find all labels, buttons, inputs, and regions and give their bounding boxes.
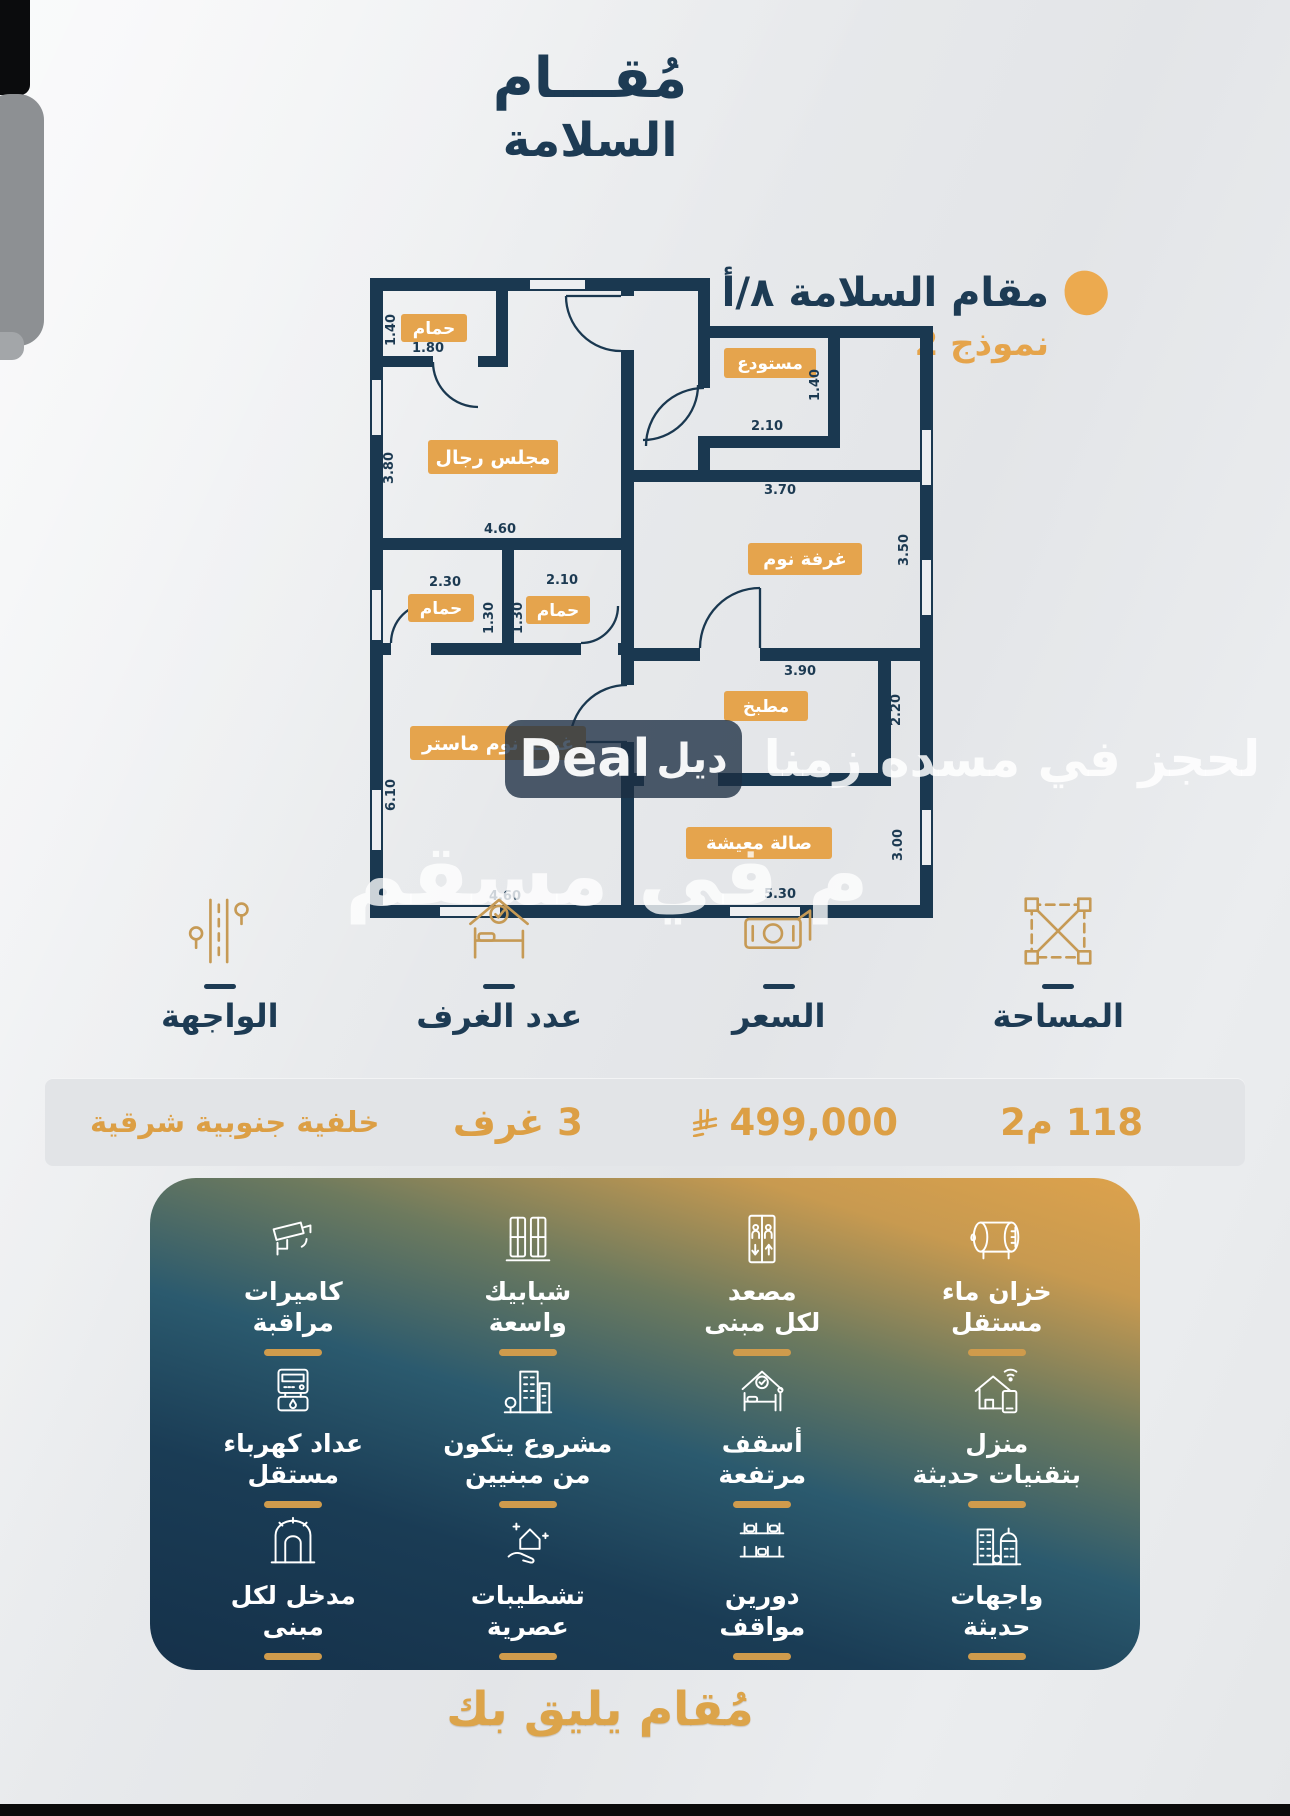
dim-master-h: 6.10 [384,779,399,811]
feature-underline [264,1349,322,1356]
features-grid: ٥ خزان ماءمستقل مصعدلكل مبنى [150,1178,1140,1670]
spec-facade-value: خلفية جنوبية شرقية [90,1105,379,1139]
feature-modern-facades: واجهاتحديثة [880,1508,1115,1660]
room-label-storage: مستودع [737,354,803,374]
feature-elevator: مصعدلكل مبنى [645,1204,880,1356]
feature-label: دورينمواقف [719,1580,805,1642]
divider-dash [763,984,795,989]
entrance-icon [262,1512,324,1574]
svg-text:٥: ٥ [969,1230,976,1244]
feature-entrance: مدخل لكلمبنى [176,1508,411,1660]
smart-home-icon [966,1360,1028,1422]
brand-logo-line1: مُقـــام [0,46,1180,111]
specs-values-band: 118 م2 499,000 3 غرف خلفية جنوبية شرقية [45,1078,1245,1166]
feature-label: كاميراتمراقبة [244,1276,343,1338]
dim-bedroom-h: 3.50 [897,534,912,566]
brand-logo-line2: السلامة [0,113,1180,168]
blob-icon [1059,266,1112,319]
feature-label: شبابيكواسعة [484,1276,571,1338]
feature-underline [733,1501,791,1508]
feature-label: مصعدلكل مبنى [704,1276,820,1338]
elevator-icon [731,1208,793,1270]
spec-price: السعر [639,882,919,1035]
feature-label: خزان ماءمستقل [942,1276,1052,1338]
feature-smart-home: منزلبتقنيات حديثة [880,1356,1115,1508]
finishes-icon [497,1512,559,1574]
rooms-icon [456,882,542,974]
riyal-symbol-icon [691,1107,719,1137]
spec-price-label: السعر [732,997,826,1035]
dim-storage-h: 1.40 [808,369,823,401]
feature-label: منزلبتقنيات حديثة [913,1428,1081,1490]
feature-label: عداد كهرباءمستقل [223,1428,363,1490]
divider-dash [1042,984,1074,989]
spec-area-label: المساحة [993,997,1124,1035]
cctv-icon [262,1208,324,1270]
room-label-majlis: مجلس رجال [436,447,551,469]
spec-rooms: عدد الغرف [360,882,640,1035]
dim-bath-left-w: 2.30 [429,575,461,590]
floorplan-drawing: حمام مجلس رجال مستودع غرفة نوم حمام حمام… [300,230,990,930]
spec-area: المساحة [919,882,1199,1035]
feature-label: تشطيباتعصرية [471,1580,585,1642]
spec-rooms-label: عدد الغرف [416,997,582,1035]
feature-underline [264,1501,322,1508]
feature-two-buildings: مشروع يتكونمن مبنيين [411,1356,646,1508]
price-icon [736,882,822,974]
feature-parking: دورينمواقف [645,1508,880,1660]
dim-living-h: 3.00 [891,829,906,861]
spec-area-value: 118 م2 [933,1101,1210,1144]
watermark-brand-en: Deal [519,729,650,789]
feature-underline [499,1349,557,1356]
feature-underline [968,1501,1026,1508]
dim-kitchen-w: 3.90 [784,664,816,679]
spec-price-value: 499,000 [656,1101,933,1144]
feature-label: واجهاتحديثة [950,1580,1043,1642]
feature-finishes: تشطيباتعصرية [411,1508,646,1660]
features-card: ٥ خزان ماءمستقل مصعدلكل مبنى [150,1178,1140,1670]
feature-high-ceiling: أسقفمرتفعة [645,1356,880,1508]
spec-rooms-value: 3 غرف [379,1101,656,1144]
room-label-kitchen: مطبخ [743,697,789,717]
dim-bath-top-w: 1.80 [412,341,444,356]
dim-bath-left-h: 1.30 [482,602,497,634]
dim-majlis-w: 4.60 [484,522,516,537]
feature-underline [499,1501,557,1508]
feature-label: أسقفمرتفعة [718,1428,806,1490]
dim-majlis-h: 3.80 [382,452,397,484]
modern-facades-icon [966,1512,1028,1574]
price-number: 499,000 [729,1101,898,1144]
dim-bath-right-w: 2.10 [546,573,578,588]
feature-underline [968,1349,1026,1356]
divider-dash [483,984,515,989]
feature-water-tank: ٥ خزان ماءمستقل [880,1204,1115,1356]
tagline: مُقام يليق بك [0,1682,1200,1737]
dim-bath-right-h: 1.30 [511,602,526,634]
watermark-logo: Deal ديل [505,720,742,798]
room-label-bedroom: غرفة نوم [763,549,847,570]
feature-windows: شبابيكواسعة [411,1204,646,1356]
dim-bedroom-w: 3.70 [764,483,796,498]
feature-cctv: كاميراتمراقبة [176,1204,411,1356]
brand-logo: مُقـــام السلامة [0,46,1180,168]
bottom-black-bar [0,1804,1290,1816]
feature-label: مشروع يتكونمن مبنيين [443,1428,612,1490]
room-label-bath-left: حمام [420,599,463,619]
specs-row: المساحة السعر [80,882,1198,1035]
water-tank-icon: ٥ [966,1208,1028,1270]
high-ceiling-icon [731,1360,793,1422]
flyer-page: مُقـــام السلامة مقام السلامة ٨/أ نموذج … [0,0,1290,1816]
windows-icon [497,1208,559,1270]
feature-underline [264,1653,322,1660]
spec-facade-label: الواجهة [161,997,279,1035]
room-label-bath-top: حمام [413,319,456,339]
dim-storage-w: 2.10 [751,419,783,434]
area-icon [1015,882,1101,974]
electric-meter-icon [262,1360,324,1422]
feature-underline [733,1349,791,1356]
feature-label: مدخل لكلمبنى [231,1580,356,1642]
feature-underline [733,1653,791,1660]
room-label-bath-right: حمام [537,601,580,621]
dim-bath-top-h: 1.40 [384,314,399,346]
feature-underline [499,1653,557,1660]
watermark-row: Deal ديل لحجز في مسده زمنا [505,720,1260,798]
divider-dash [204,984,236,989]
facade-icon [177,882,263,974]
feature-electric-meter: عداد كهرباءمستقل [176,1356,411,1508]
parking-icon [731,1512,793,1574]
side-player-nub [0,332,24,360]
watermark-text: لحجز في مسده زمنا [764,730,1261,788]
two-buildings-icon [497,1360,559,1422]
spec-facade: الواجهة [80,882,360,1035]
feature-underline [968,1653,1026,1660]
watermark-brand-ar: ديل [656,736,727,782]
